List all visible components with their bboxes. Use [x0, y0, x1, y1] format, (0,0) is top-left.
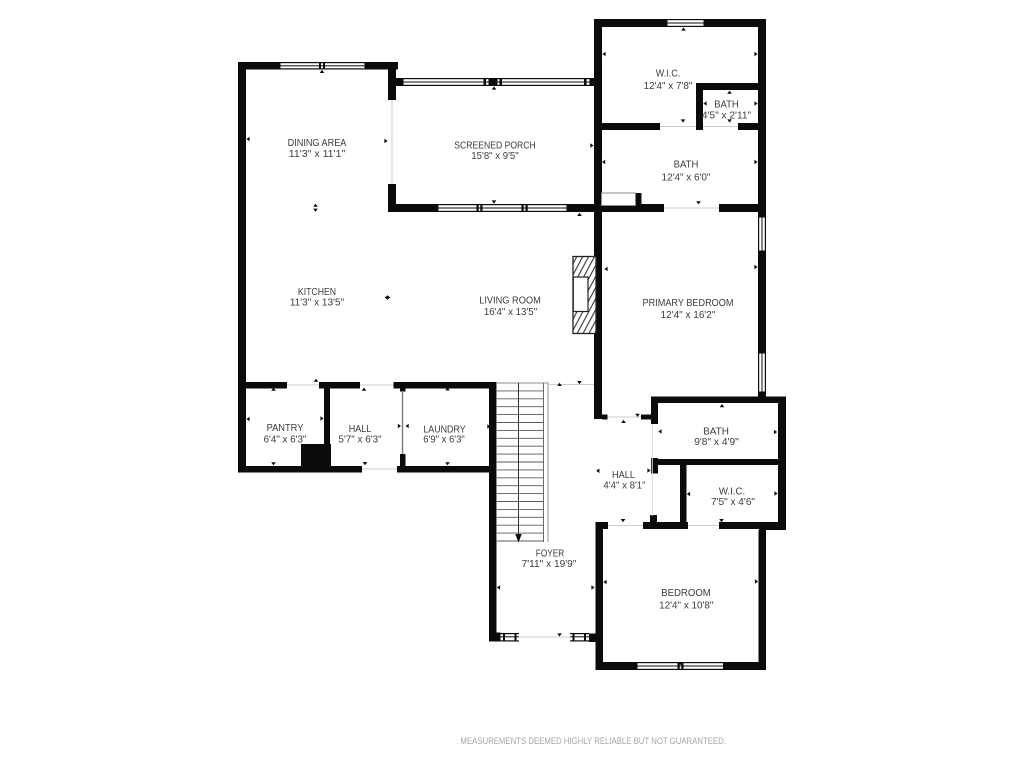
- svg-text:12'4" x 6'0": 12'4" x 6'0": [662, 173, 711, 184]
- svg-text:BATH: BATH: [674, 160, 699, 171]
- svg-text:4'4" x 8'1": 4'4" x 8'1": [603, 481, 646, 492]
- svg-text:LIVING ROOM: LIVING ROOM: [479, 296, 541, 307]
- svg-text:DINING AREA: DINING AREA: [288, 138, 347, 149]
- svg-text:15'8" x 9'5": 15'8" x 9'5": [471, 151, 519, 162]
- svg-text:7'5" x 4'6": 7'5" x 4'6": [711, 497, 755, 508]
- svg-text:16'4" x 13'5": 16'4" x 13'5": [484, 307, 538, 318]
- svg-text:7'11" x 19'9": 7'11" x 19'9": [522, 559, 577, 570]
- svg-text:6'9" x 6'3": 6'9" x 6'3": [423, 435, 465, 446]
- svg-text:11'3" x 13'5": 11'3" x 13'5": [290, 298, 345, 309]
- svg-text:W.I.C.: W.I.C.: [656, 69, 680, 80]
- svg-text:6'4" x 6'3": 6'4" x 6'3": [264, 435, 307, 446]
- svg-text:SCREENED PORCH: SCREENED PORCH: [454, 140, 535, 151]
- svg-text:BEDROOM: BEDROOM: [661, 588, 711, 599]
- svg-text:HALL: HALL: [349, 424, 372, 435]
- svg-text:12'4" x 10'8": 12'4" x 10'8": [659, 600, 714, 611]
- svg-text:FOYER: FOYER: [536, 549, 564, 560]
- svg-text:PRIMARY BEDROOM: PRIMARY BEDROOM: [643, 298, 734, 309]
- svg-text:12'4" x 16'2": 12'4" x 16'2": [661, 310, 716, 321]
- svg-text:PANTRY: PANTRY: [267, 423, 304, 434]
- svg-text:KITCHEN: KITCHEN: [298, 287, 336, 298]
- svg-text:W.I.C.: W.I.C.: [719, 487, 745, 498]
- svg-text:HALL: HALL: [612, 470, 635, 481]
- svg-text:9'8" x 4'9": 9'8" x 4'9": [694, 437, 739, 448]
- svg-text:11'3" x 11'1": 11'3" x 11'1": [289, 149, 346, 160]
- svg-text:4'5" x 2'11": 4'5" x 2'11": [702, 110, 752, 121]
- svg-text:. MEASUREMENTS DEEMED HIGHLY R: . MEASUREMENTS DEEMED HIGHLY RELIABLE BU…: [456, 736, 726, 746]
- svg-text:12'4" x 7'8": 12'4" x 7'8": [644, 81, 693, 92]
- svg-text:BATH: BATH: [714, 99, 739, 110]
- svg-text:BATH: BATH: [703, 427, 729, 438]
- svg-text:5'7" x 6'3": 5'7" x 6'3": [338, 435, 382, 446]
